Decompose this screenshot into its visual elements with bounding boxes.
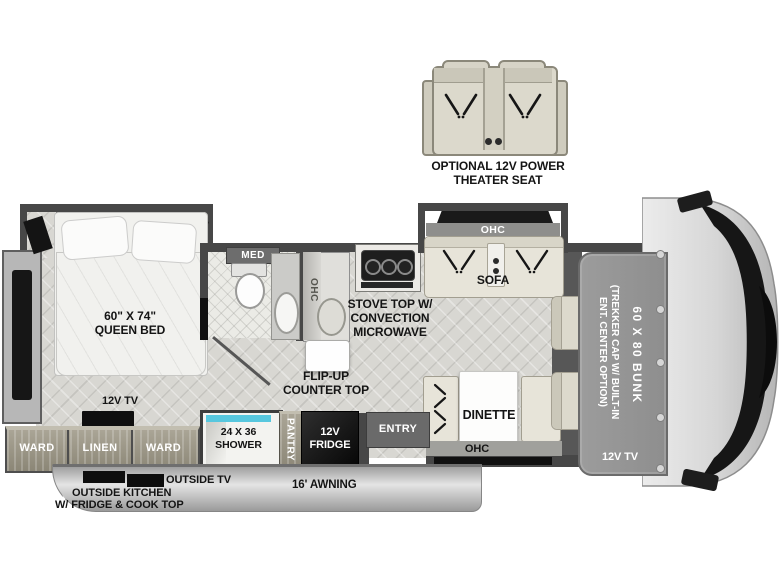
entry-platform: ENTRY bbox=[366, 412, 430, 448]
stove-label-line2: CONVECTION bbox=[330, 312, 450, 324]
fridge-label-line1: 12V bbox=[302, 427, 358, 438]
theater-seat-label-line2: THEATER SEAT bbox=[415, 174, 581, 186]
rivet-icon bbox=[656, 358, 665, 367]
dinette-label: DINETTE bbox=[429, 409, 549, 422]
rv-floorplan: OPTIONAL 12V POWER THEATER SEAT 60" X 74… bbox=[0, 0, 782, 586]
bed-name-label: QUEEN BED bbox=[55, 324, 205, 336]
bath-left-closet bbox=[200, 298, 208, 340]
cupholder-icon bbox=[493, 258, 499, 264]
burner-icon bbox=[365, 259, 381, 275]
theater-stitch-right bbox=[506, 92, 544, 120]
outside-kitchen-door bbox=[83, 471, 125, 483]
rivet-icon bbox=[656, 464, 665, 473]
pillow-left bbox=[60, 215, 129, 261]
bunk-size-label: 60 X 80 BUNK bbox=[629, 280, 643, 430]
sofa-window bbox=[437, 211, 553, 223]
burner-icon bbox=[397, 259, 413, 275]
rivet-icon bbox=[656, 250, 665, 259]
cab-tv-label: 12V TV bbox=[578, 452, 662, 463]
burner-icon bbox=[381, 259, 397, 275]
fridge-label-line2: FRIDGE bbox=[302, 440, 358, 451]
linen-label: LINEN bbox=[69, 443, 131, 454]
rear-window bbox=[12, 270, 32, 400]
awning-label: 16' AWNING bbox=[292, 480, 357, 492]
outside-kitchen-label-line1: OUTSIDE KITCHEN bbox=[72, 488, 171, 499]
sofa bbox=[424, 236, 564, 298]
ward-left-label: WARD bbox=[7, 443, 67, 454]
sofa-ohc-cabinet: OHC bbox=[426, 223, 560, 236]
stove-lower-strip bbox=[361, 282, 413, 288]
fridge-12v: 12V FRIDGE bbox=[301, 411, 359, 470]
seat-back bbox=[552, 297, 562, 349]
stove-label-line1: STOVE TOP W/ bbox=[330, 298, 450, 310]
pantry-label: PANTRY bbox=[284, 415, 295, 465]
trekker-cap-line1: (TREKKER CAP W/ BUILT-IN bbox=[608, 267, 620, 437]
seat-back bbox=[552, 373, 562, 429]
shower-label-line1: 24 X 36 bbox=[203, 427, 274, 438]
flip-up-counter bbox=[305, 340, 350, 372]
shower-label-line2: SHOWER bbox=[203, 440, 274, 451]
cupholder-icon bbox=[485, 138, 492, 145]
rivet-icon bbox=[656, 305, 665, 314]
rivet-icon bbox=[656, 413, 665, 422]
dinette-ohc-label: OHC bbox=[417, 444, 537, 455]
bed-size-label: 60" X 74" bbox=[55, 310, 205, 322]
optional-theater-seat: OPTIONAL 12V POWER THEATER SEAT bbox=[415, 58, 581, 190]
bedroom-slide-top-wall bbox=[20, 204, 212, 212]
bedroom-tv bbox=[82, 411, 134, 427]
cupholder-icon bbox=[495, 138, 502, 145]
flip-up-label-line2: COUNTER TOP bbox=[266, 384, 386, 396]
outside-tv-label: OUTSIDE TV bbox=[166, 475, 231, 486]
stove-top bbox=[361, 250, 415, 281]
shower-glass-accent bbox=[206, 415, 271, 422]
flip-up-label-line1: FLIP-UP bbox=[266, 370, 386, 382]
sofa-ohc-label: OHC bbox=[426, 225, 560, 236]
toilet-bowl bbox=[235, 273, 265, 309]
theater-seat-label-line1: OPTIONAL 12V POWER bbox=[415, 160, 581, 172]
pillow-right bbox=[131, 220, 198, 264]
bedroom-tv-label: 12V TV bbox=[50, 396, 190, 407]
cabover-bunk bbox=[578, 252, 668, 476]
stove-label-line3: MICROWAVE bbox=[330, 326, 450, 338]
sofa-slide-top-wall bbox=[418, 203, 568, 211]
entry-label: ENTRY bbox=[367, 424, 429, 435]
outside-tv-mount bbox=[127, 474, 164, 487]
theater-stitch-left bbox=[442, 92, 480, 120]
outside-kitchen-label-line2: W/ FRIDGE & COOK TOP bbox=[55, 500, 184, 511]
rear-wall-panel bbox=[2, 250, 42, 424]
trekker-cap-line2: ENT. CENTER OPTION) bbox=[596, 267, 608, 437]
trekker-cap-label: (TREKKER CAP W/ BUILT-IN ENT. CENTER OPT… bbox=[596, 267, 620, 437]
ward-right-label: WARD bbox=[133, 443, 194, 454]
sofa-stitch-left bbox=[440, 249, 478, 275]
sofa-stitch-right bbox=[513, 249, 551, 275]
bath-sink bbox=[274, 292, 299, 334]
kitchen-ohc-label: OHC bbox=[306, 270, 318, 310]
sofa-label: SOFA bbox=[433, 274, 553, 286]
